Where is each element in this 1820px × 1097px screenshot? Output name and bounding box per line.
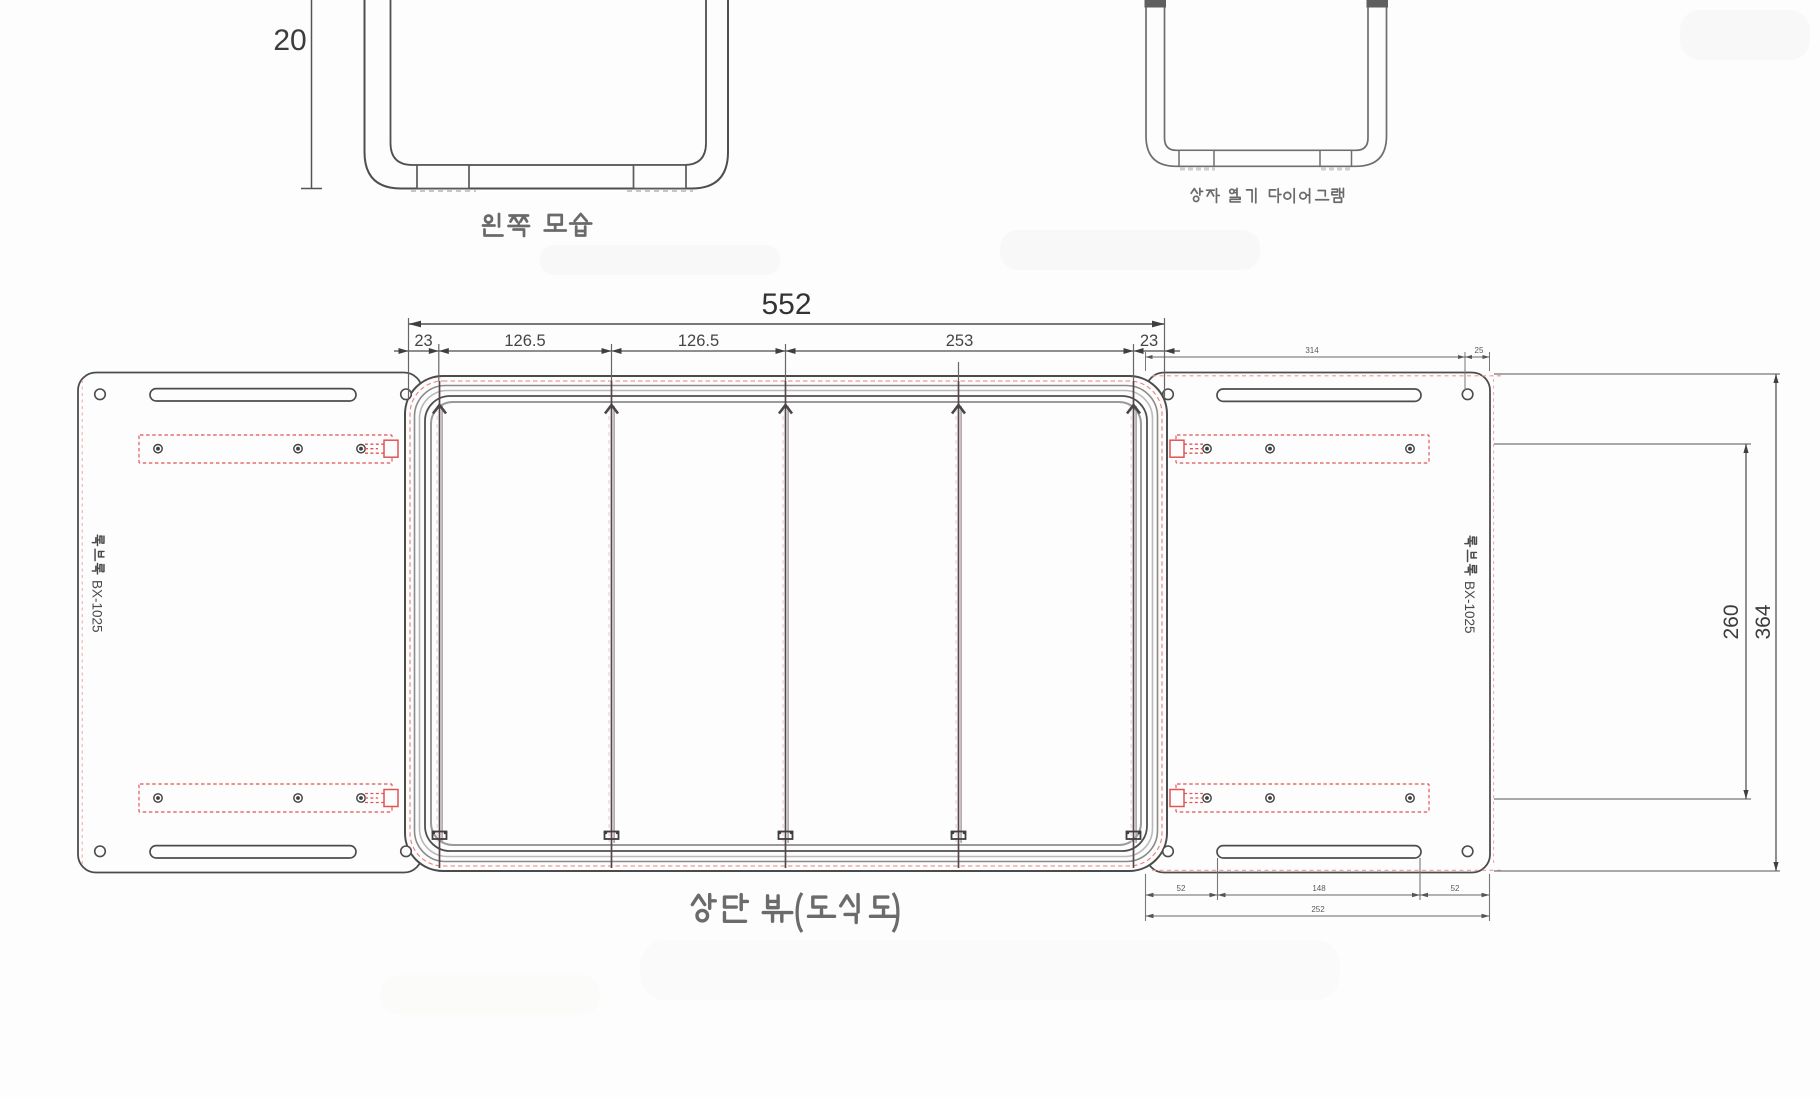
svg-text:253: 253: [946, 332, 974, 350]
svg-text:148: 148: [1312, 884, 1326, 893]
svg-text:52: 52: [1451, 884, 1460, 893]
svg-text:552: 552: [761, 288, 811, 321]
svg-text:314: 314: [1305, 346, 1319, 355]
svg-text:52: 52: [1177, 884, 1186, 893]
svg-text:BX-1025: BX-1025: [90, 580, 105, 633]
svg-text:23: 23: [1140, 332, 1158, 350]
svg-text:23: 23: [414, 332, 432, 350]
svg-text:260: 260: [1720, 604, 1743, 639]
svg-text:364: 364: [1752, 604, 1775, 639]
svg-text:25: 25: [1475, 346, 1484, 355]
svg-text:BX-1025: BX-1025: [1462, 581, 1477, 634]
svg-text:20: 20: [273, 24, 306, 57]
svg-text:126.5: 126.5: [504, 332, 545, 350]
svg-text:252: 252: [1311, 905, 1325, 914]
svg-text:126.5: 126.5: [678, 332, 719, 350]
